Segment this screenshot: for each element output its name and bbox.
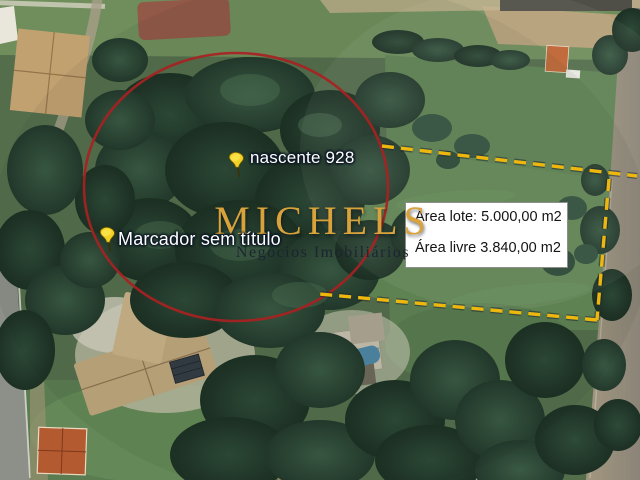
marker-label-marcador: Marcador sem título <box>118 229 281 250</box>
marker-label-nascente: nascente 928 <box>250 148 354 168</box>
area-livre-text: Área livre 3.840,00 m2 <box>415 241 559 256</box>
satellite-listing-image: nascente 928 Marcador sem título Área lo… <box>0 0 640 480</box>
area-lote-text: Área lote: 5.000,00 m2 <box>415 210 559 225</box>
orange-house-left <box>37 427 87 475</box>
area-info-box: Área lote: 5.000,00 m2 Área livre 3.840,… <box>405 202 568 268</box>
